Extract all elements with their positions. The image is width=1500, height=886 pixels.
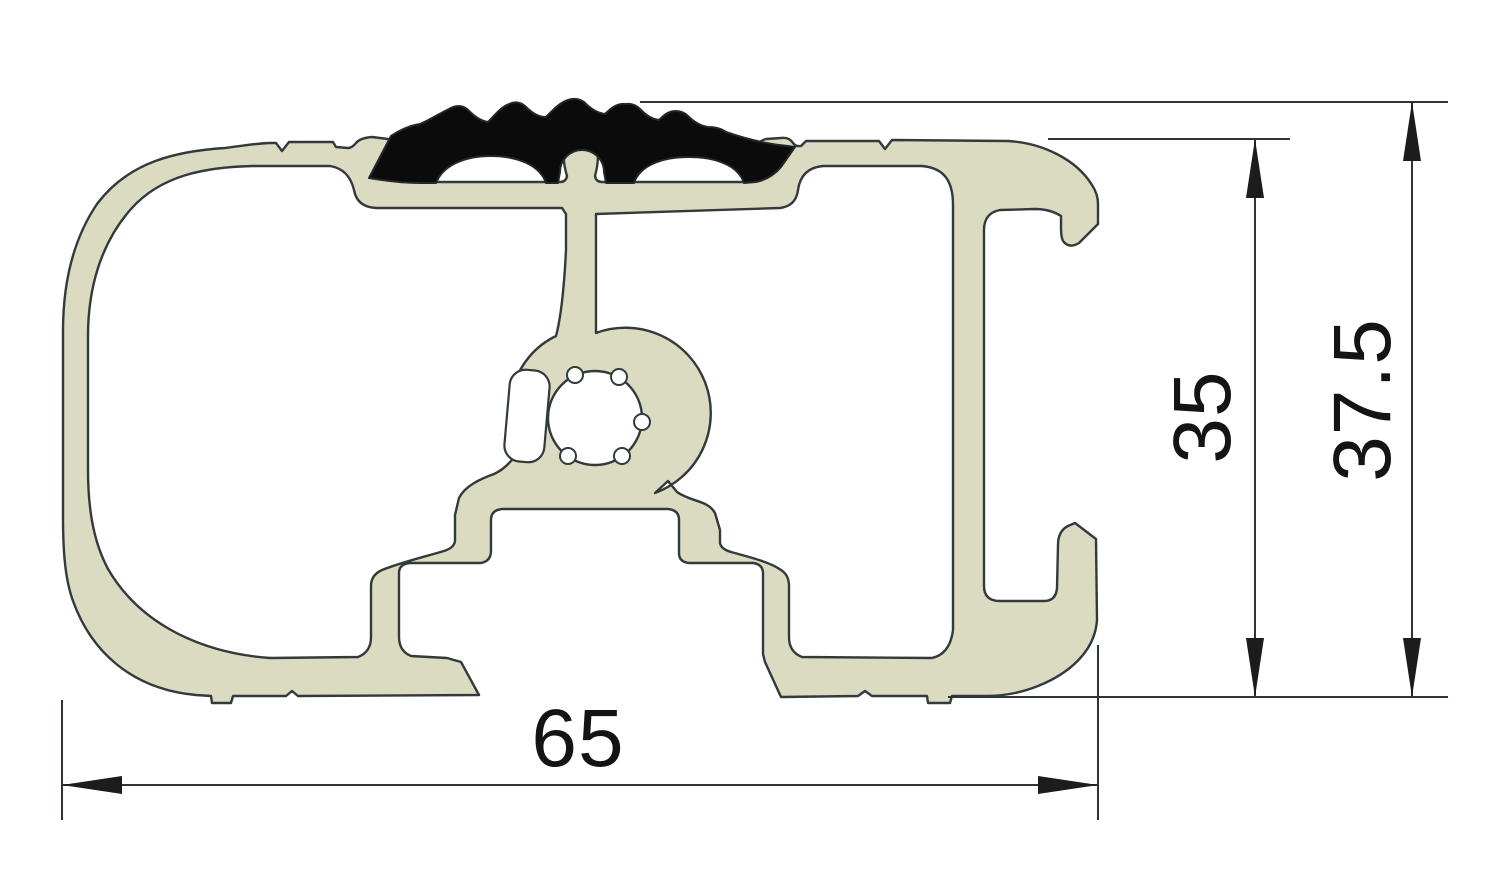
profile-drawing: 65 35 37.5 [0,0,1500,886]
dim-label-inner-height: 35 [1157,370,1248,463]
arrowhead-up-icon [1246,139,1264,198]
arrowhead-down-icon [1246,638,1264,697]
bore-notch-icon [611,369,627,385]
dim-label-width: 65 [531,693,624,784]
bore-notch-icon [567,367,583,383]
arrowhead-right-icon [1038,776,1098,794]
arrowhead-down-icon [1403,638,1421,697]
dim-label-overall-height: 37.5 [1317,318,1408,482]
aluminum-profile-body [63,137,1098,703]
arrowhead-left-icon [62,776,122,794]
bore-notch-icon [614,448,630,464]
arrowhead-up-icon [1403,102,1421,161]
technical-drawing-canvas: 65 35 37.5 [0,0,1500,886]
bore-notch-icon [634,414,650,430]
bore-notch-icon [560,448,576,464]
ring-gap-opening [503,368,551,463]
